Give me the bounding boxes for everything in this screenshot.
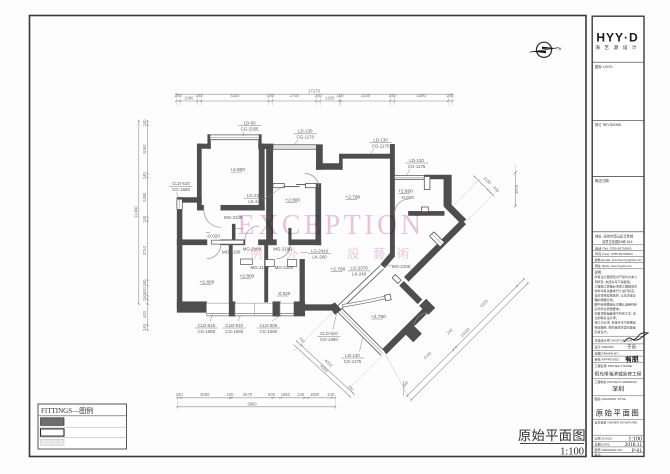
- svg-text:地址: 深圳市南山区华侨城: 地址: 深圳市南山区华侨城: [595, 234, 634, 239]
- svg-text:藝: 藝: [373, 247, 386, 261]
- svg-text:CLD-510: CLD-510: [198, 323, 216, 328]
- svg-text:MG-2100: MG-2100: [251, 265, 270, 270]
- svg-text:CG-1650: CG-1650: [225, 329, 243, 334]
- svg-text:2570: 2570: [243, 392, 253, 397]
- svg-text:1675: 1675: [514, 184, 519, 194]
- svg-text:确的重要比例。: 确的重要比例。: [595, 297, 616, 302]
- svg-text:FITTINGS—图例: FITTINGS—图例: [41, 406, 93, 415]
- svg-text:P-01: P-01: [632, 448, 642, 454]
- svg-text:-0.020: -0.020: [401, 195, 414, 200]
- svg-text:究责任方。: 究责任方。: [595, 329, 610, 334]
- svg-text:网址 (Web): www.hyyd3.com: 网址 (Web): www.hyyd3.com: [595, 263, 632, 268]
- svg-text:立即联系设计师。: 立即联系设计师。: [595, 315, 619, 320]
- svg-text:CG-1170: CG-1170: [372, 144, 390, 149]
- svg-text:設: 設: [347, 246, 360, 261]
- svg-text:深圳: 深圳: [612, 385, 624, 393]
- svg-text:修改图纸, 否则造成失误问题追: 修改图纸, 否则造成失误问题追: [595, 324, 636, 329]
- svg-text:3100: 3100: [361, 93, 371, 98]
- svg-text:如发现有偏差或不符合工艺, 请: 如发现有偏差或不符合工艺, 请: [595, 311, 636, 316]
- svg-text:9880: 9880: [247, 401, 257, 406]
- svg-text:1660: 1660: [281, 392, 291, 397]
- svg-text:CG-1170: CG-1170: [297, 135, 315, 140]
- svg-text:图号 DRAWING NO.:: 图号 DRAWING NO.:: [595, 447, 624, 452]
- svg-text:工程施工质量必须按工程规范对: 工程施工质量必须按工程规范对: [595, 283, 638, 288]
- svg-text:CLD-510: CLD-510: [320, 331, 338, 336]
- svg-text:LG-2410: LG-2410: [311, 249, 329, 254]
- svg-text:620: 620: [142, 310, 147, 318]
- svg-text:原始平面图: 原始平面图: [518, 428, 586, 443]
- svg-text:HYY·D: HYY·D: [596, 31, 638, 45]
- svg-text:图标 LOGO: 图标 LOGO: [595, 64, 613, 69]
- svg-text:施工方必须, 未经许可不得擅自: 施工方必须, 未经许可不得擅自: [595, 320, 636, 325]
- svg-text:LD-50: LD-50: [244, 121, 257, 126]
- svg-text:CG-1550: CG-1550: [259, 329, 277, 334]
- svg-text:CLD-500: CLD-500: [260, 323, 278, 328]
- svg-text:MG-2100: MG-2100: [275, 265, 294, 270]
- svg-text:电话 (Tel): 0755-82793063: 电话 (Tel): 0755-82793063: [595, 245, 632, 250]
- svg-text:340: 340: [142, 279, 147, 287]
- svg-text:CLD-510: CLD-510: [225, 323, 243, 328]
- svg-text:240: 240: [297, 392, 305, 397]
- svg-text:240: 240: [315, 93, 323, 98]
- svg-text:海艺源设计: 海艺源设计: [595, 44, 641, 51]
- svg-text:LD-130: LD-130: [409, 158, 424, 163]
- svg-text:材料中有关要求尺寸进行核实。: 材料中有关要求尺寸进行核实。: [595, 288, 638, 293]
- svg-text:3710: 3710: [142, 245, 147, 255]
- svg-text:3060: 3060: [142, 144, 147, 154]
- svg-text:LD-130: LD-130: [298, 129, 313, 134]
- svg-text:LK-240: LK-240: [352, 272, 367, 277]
- svg-text:240: 240: [196, 93, 204, 98]
- svg-text:绘图 DRAWN BY:: 绘图 DRAWN BY:: [595, 350, 619, 355]
- svg-text:2490: 2490: [142, 192, 147, 202]
- svg-text:-0.020: -0.020: [277, 291, 290, 296]
- svg-text:11460: 11460: [133, 206, 138, 218]
- svg-text:创意文化园E6栋-616: 创意文化园E6栋-616: [602, 239, 633, 244]
- svg-text:CLD-510: CLD-510: [172, 181, 190, 186]
- svg-text:例: 例: [250, 247, 263, 261]
- svg-text:240: 240: [175, 93, 183, 98]
- svg-text:240: 240: [267, 93, 275, 98]
- svg-text:概念日期:: 概念日期:: [595, 178, 610, 183]
- svg-text:240: 240: [327, 392, 335, 397]
- svg-text:传真 (Fax): 0755-82793063: 传真 (Fax): 0755-82793063: [595, 251, 633, 256]
- svg-text:100: 100: [227, 392, 235, 397]
- svg-text:1680: 1680: [310, 392, 320, 397]
- svg-text:100: 100: [337, 93, 345, 98]
- svg-text:-0.020: -0.020: [207, 233, 220, 238]
- svg-text:240: 240: [447, 93, 455, 98]
- svg-text:业主签名 OWNER SIGNATURE:: 业主签名 OWNER SIGNATURE:: [595, 420, 638, 425]
- svg-text:CG-1175: CG-1175: [344, 359, 362, 364]
- svg-text:CG-1175: CG-1175: [408, 164, 426, 169]
- svg-text:图名 DRAWING TITLE:: 图名 DRAWING TITLE:: [595, 396, 627, 401]
- svg-text:240: 240: [142, 215, 147, 223]
- svg-text:3380: 3380: [417, 93, 427, 98]
- svg-text:请对现场复核验时, 以本决定正: 请对现场复核验时, 以本决定正: [595, 292, 636, 297]
- svg-text:审核 APPROVED:: 审核 APPROVED:: [595, 356, 620, 361]
- svg-text:备注:: 备注:: [595, 452, 602, 457]
- svg-text:必须符合质量要求。: 必须符合质量要求。: [595, 306, 622, 311]
- svg-text:原始平面图: 原始平面图: [596, 409, 640, 418]
- svg-text:LK-260: LK-260: [312, 255, 327, 260]
- svg-text:阳光带海滨城装修工程: 阳光带海滨城装修工程: [595, 370, 642, 377]
- svg-text:比例 SCALE:: 比例 SCALE:: [595, 436, 613, 441]
- svg-text:司所有, 未经许可不得使用。: 司所有, 未经许可不得使用。: [595, 279, 633, 284]
- svg-text:620: 620: [142, 286, 147, 294]
- svg-text:CG-1850: CG-1850: [320, 337, 338, 342]
- svg-text:3050: 3050: [200, 392, 210, 397]
- svg-text:日期 DATE:: 日期 DATE:: [595, 441, 611, 446]
- svg-text:240: 240: [142, 323, 147, 331]
- svg-text:CG-1850: CG-1850: [197, 329, 215, 334]
- svg-text:于乐: 于乐: [627, 344, 637, 350]
- svg-text:修订 REVISIONS: 修订 REVISIONS: [595, 122, 622, 127]
- svg-text:工程名称 PROJECT NAME:: 工程名称 PROJECT NAME:: [595, 363, 633, 368]
- svg-text:LG-2300: LG-2300: [247, 193, 265, 198]
- svg-text:2750: 2750: [290, 93, 300, 98]
- svg-text:MG-2100: MG-2100: [392, 264, 411, 269]
- svg-text:LK-240: LK-240: [248, 199, 263, 204]
- svg-text:240: 240: [176, 392, 184, 397]
- svg-text:1080: 1080: [184, 96, 194, 101]
- svg-text:1:100: 1:100: [560, 447, 584, 458]
- svg-text:1200: 1200: [325, 96, 335, 101]
- svg-text:LD-130: LD-130: [373, 138, 388, 143]
- svg-text:240: 240: [389, 93, 397, 98]
- svg-text:图中标明需经业主确认选用材料: 图中标明需经业主确认选用材料: [595, 302, 638, 307]
- svg-text:邮箱 (Email): shenzhenhyy@163.co: 邮箱 (Email): shenzhenhyy@163.com: [595, 258, 643, 262]
- svg-text:所有设计图纸知识产权均为本公: 所有设计图纸知识产权均为本公: [595, 274, 638, 279]
- svg-text:240: 240: [142, 119, 147, 127]
- svg-text:外: 外: [286, 247, 299, 261]
- svg-text:说明:: 说明:: [595, 269, 603, 274]
- svg-text:MG-2100: MG-2100: [222, 249, 241, 254]
- svg-text:240: 240: [142, 171, 147, 179]
- svg-text:LD-130: LD-130: [345, 353, 360, 358]
- svg-text:500: 500: [268, 392, 276, 397]
- svg-text:EXCEPTION: EXCEPTION: [237, 210, 424, 241]
- svg-text:工程地址 PROJECT ADDRESS:: 工程地址 PROJECT ADDRESS:: [595, 379, 638, 384]
- svg-text:CG-2355: CG-2355: [241, 127, 259, 132]
- svg-text:4220: 4220: [230, 93, 240, 98]
- svg-text:240: 240: [142, 293, 147, 301]
- svg-text:CG-1550: CG-1550: [172, 187, 190, 192]
- svg-text:術: 術: [397, 247, 410, 261]
- svg-text:设计 DESIGN:: 设计 DESIGN:: [595, 344, 615, 349]
- svg-text:LG-2370: LG-2370: [351, 266, 369, 271]
